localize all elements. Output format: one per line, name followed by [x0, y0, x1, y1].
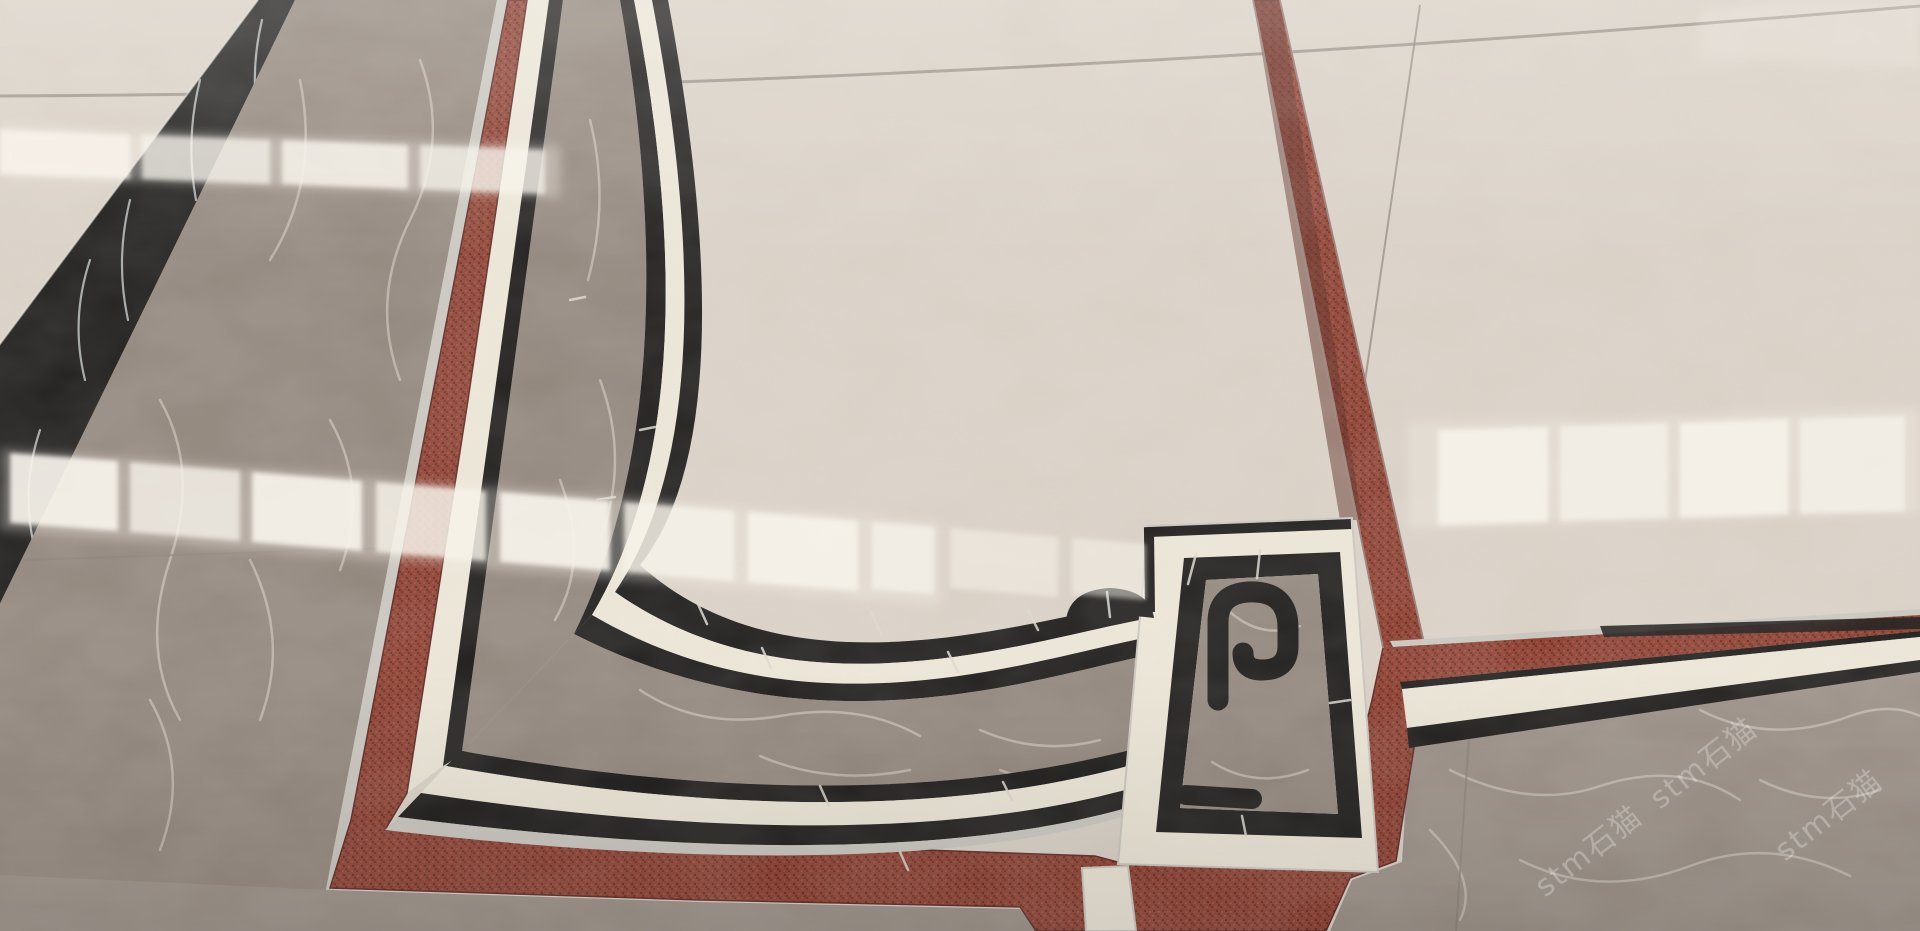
marble-floor-photo: Close-up oblique photograph of polished …	[0, 0, 1920, 931]
floor-scene: Close-up oblique photograph of polished …	[0, 0, 1920, 931]
lighting-vignette	[0, 0, 1920, 931]
